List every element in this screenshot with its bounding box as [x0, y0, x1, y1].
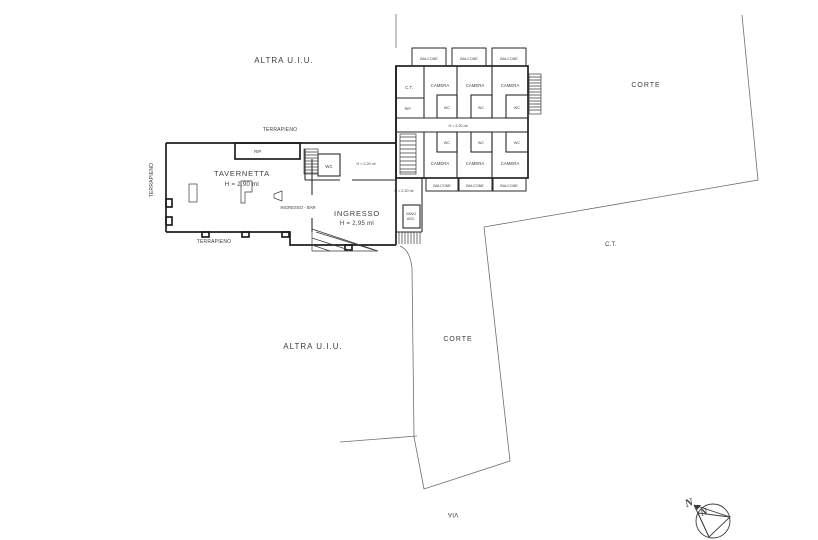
- steps-below-wing: [399, 232, 420, 244]
- camera-label-top-3: CAMERA: [501, 83, 520, 88]
- label-terrapieno-left: TERRAPIENO: [149, 163, 155, 198]
- room-label-rip-left: RIP.: [254, 149, 262, 154]
- camera-label-top-2: CAMERA: [466, 83, 485, 88]
- wc-label-bottom-1: WC: [444, 141, 450, 145]
- pillar-1: [189, 184, 197, 202]
- wc-label-top-3: WC: [514, 106, 520, 110]
- room-label-ingresso-height: H = 2,95 ml: [340, 221, 374, 227]
- label-altra-uiu-top: ALTRA U.I.U.: [254, 56, 313, 65]
- balcone-label-top-3: BALCONE: [500, 57, 518, 61]
- wc-label-bottom-2: WC: [478, 141, 484, 145]
- balcone-label-top-1: BALCONE: [420, 57, 438, 61]
- balcone-label-bottom-1: BALCONE: [433, 184, 451, 188]
- room-label-ct: C.T.: [405, 85, 413, 90]
- label-h220-left: H = 2,20 ml: [357, 162, 376, 166]
- balconies: [412, 48, 526, 191]
- camera-label-bottom-3: CAMERA: [501, 161, 520, 166]
- buttress-1: [202, 232, 209, 237]
- compass-north-label-outer: N: [682, 496, 695, 511]
- balcone-label-bottom-2: BALCONE: [466, 184, 484, 188]
- buttress-2: [242, 232, 249, 237]
- floor-plan-drawing: ALTRA U.I.U. ALTRA U.I.U. TERRAPIENO TER…: [0, 0, 818, 540]
- label-terrapieno-top: TERRAPIENO: [263, 127, 298, 133]
- plan-labels: ALTRA U.I.U. ALTRA U.I.U. TERRAPIENO TER…: [149, 56, 710, 519]
- room-label-ingresso-bar: INGRESSO - BAR: [280, 205, 315, 210]
- label-via: VIA: [448, 511, 459, 517]
- camera-label-bottom-2: CAMERA: [466, 161, 485, 166]
- left-wall-notch-1: [166, 199, 172, 207]
- room-label-vano-asc-1: VANO: [406, 212, 416, 216]
- buttress-3: [282, 232, 289, 237]
- boundary-corte-strip: [400, 227, 510, 489]
- label-h220-corridor: H = 2,20 ml: [449, 124, 468, 128]
- room-label-ingresso: INGRESSO: [334, 209, 380, 218]
- balcone-label-top-2: BALCONE: [460, 57, 478, 61]
- left-building-walls: [166, 143, 396, 250]
- camera-label-bottom-1: CAMERA: [431, 161, 450, 166]
- balcone-label-bottom-3: BALCONE: [500, 184, 518, 188]
- room-label-rip-upper: RIP.: [405, 107, 412, 111]
- left-wall-notch-2: [166, 217, 172, 225]
- label-h220-wing: H = 2,20 ml: [395, 189, 414, 193]
- rip-room-left: [235, 143, 300, 159]
- boundary-lower-left-fence: [340, 436, 417, 442]
- label-altra-uiu-bottom: ALTRA U.I.U.: [283, 342, 342, 351]
- room-label-tavernetta: TAVERNETTA: [214, 169, 270, 178]
- room-label-vano-asc-2: ASC.: [407, 217, 416, 221]
- stairs-left-treads: [304, 152, 318, 173]
- stairs-wing: [400, 134, 416, 174]
- room-label-wc-left: WC: [325, 164, 332, 169]
- label-corte-bottom: CORTE: [443, 336, 472, 343]
- wc-label-top-1: WC: [444, 106, 450, 110]
- label-corte-right: CORTE: [631, 82, 660, 89]
- room-label-tavernetta-height: H = 2,90 ml: [225, 182, 259, 188]
- floor-plan-canvas: ALTRA U.I.U. ALTRA U.I.U. TERRAPIENO TER…: [0, 0, 818, 540]
- wc-label-bottom-3: WC: [514, 141, 520, 145]
- label-terrapieno-bottom: TERRAPIENO: [197, 239, 232, 245]
- external-stair-treads: [529, 77, 541, 110]
- parcel-boundary-lines: [340, 14, 758, 489]
- label-ct-parcel: C.T.: [605, 242, 617, 248]
- door-swing-shape: [274, 191, 282, 201]
- stairs-wing-treads: [400, 137, 416, 172]
- camera-label-top-1: CAMERA: [431, 83, 450, 88]
- boundary-upper-right: [484, 15, 758, 227]
- wc-label-top-2: WC: [478, 106, 484, 110]
- ramp-hatch: [312, 232, 374, 251]
